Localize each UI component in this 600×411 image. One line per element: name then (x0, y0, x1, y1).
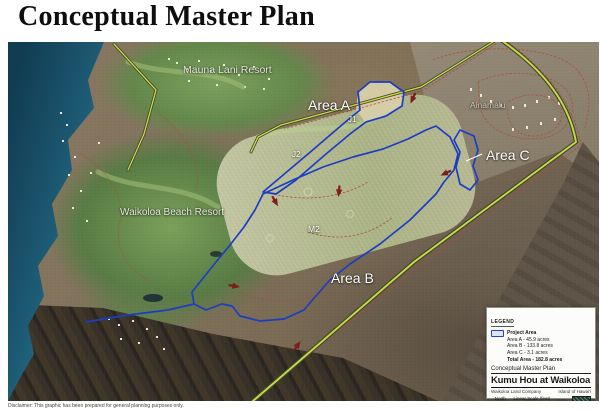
legend-card: LEGEND Project Area Area A - 45.9 acres … (486, 307, 596, 399)
project-title: Kumu Hou at Waikoloa (491, 373, 591, 388)
legend-heading: LEGEND (491, 319, 514, 327)
disclaimer-text: Disclaimer: This graphic has been prepar… (8, 403, 184, 409)
page: Conceptual Master Plan (0, 0, 600, 411)
pbr-hawaii-logo-icon (572, 396, 591, 401)
page-title: Conceptual Master Plan (18, 1, 315, 33)
label-mauna-lani-resort: Mauna Lani Resort (183, 64, 272, 76)
project-area-swatch (491, 330, 504, 337)
project-area-label: Project Area (507, 330, 536, 336)
legend-total-area: Total Area - 182.8 acres (507, 357, 591, 364)
legend-item-area-a: Area A - 45.9 acres (507, 337, 591, 344)
linear-scale: Linear Scale (feet) 0 400 800 1,600 (514, 396, 568, 401)
island-name: Island of Hawai'i (558, 389, 591, 394)
legend-item-area-b: Area B - 133.8 acres (507, 343, 591, 350)
label-parcel-j1: J1 (348, 115, 356, 124)
label-waikoloa-beach-resort: Waikoloa Beach Resort (120, 207, 224, 218)
company-name: Waikoloa Land Company (491, 389, 541, 394)
label-parcel-m2: M2 (308, 224, 320, 234)
plan-type: Conceptual Master Plan (491, 366, 591, 372)
legend-item-area-c: Area C - 3.1 acres (507, 350, 591, 357)
label-parcel-j2: J2 (292, 150, 300, 159)
master-plan-map: Mauna Lani Resort Ainamalu Area A J1 J2 … (8, 42, 599, 401)
label-ainamalu: Ainamalu (470, 100, 505, 110)
label-area-c: Area C (486, 147, 530, 163)
label-area-b: Area B (331, 270, 374, 286)
label-area-a: Area A (308, 97, 350, 113)
